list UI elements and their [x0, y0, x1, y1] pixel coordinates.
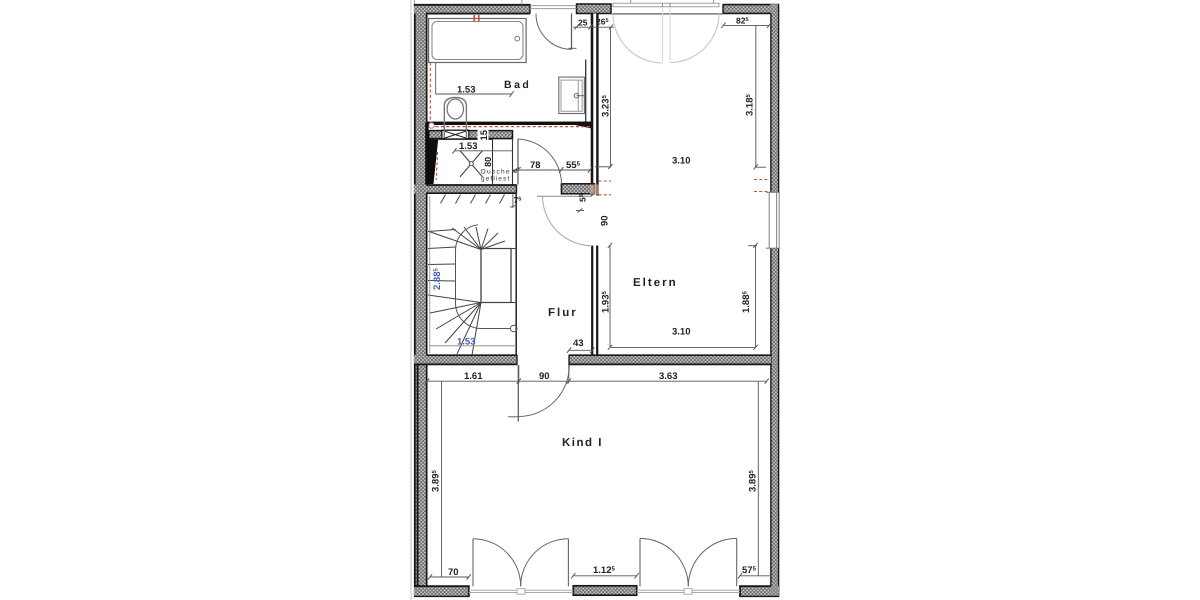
svg-text:15: 15 — [479, 129, 490, 140]
svg-text:gefliest: gefliest — [481, 176, 510, 183]
svg-text:Dusche: Dusche — [481, 169, 511, 176]
svg-text:70: 70 — [448, 567, 459, 578]
svg-text:3.10: 3.10 — [672, 156, 691, 167]
svg-text:Bad: Bad — [504, 79, 531, 91]
svg-text:3.10: 3.10 — [672, 327, 691, 338]
svg-text:1.53: 1.53 — [459, 141, 478, 152]
svg-text:25: 25 — [578, 18, 588, 28]
svg-text:90: 90 — [600, 215, 611, 226]
svg-text:Eltern: Eltern — [633, 277, 678, 289]
svg-text:1.53: 1.53 — [457, 85, 476, 96]
svg-text:1.53: 1.53 — [457, 337, 476, 348]
svg-text:78: 78 — [530, 160, 541, 171]
svg-text:3.63: 3.63 — [659, 371, 678, 382]
svg-text:43: 43 — [573, 338, 584, 349]
svg-text:1.61: 1.61 — [464, 371, 483, 382]
svg-text:Kind I: Kind I — [562, 437, 603, 449]
svg-text:80: 80 — [483, 157, 493, 167]
svg-text:90: 90 — [539, 371, 550, 382]
svg-text:Flur: Flur — [548, 307, 578, 319]
